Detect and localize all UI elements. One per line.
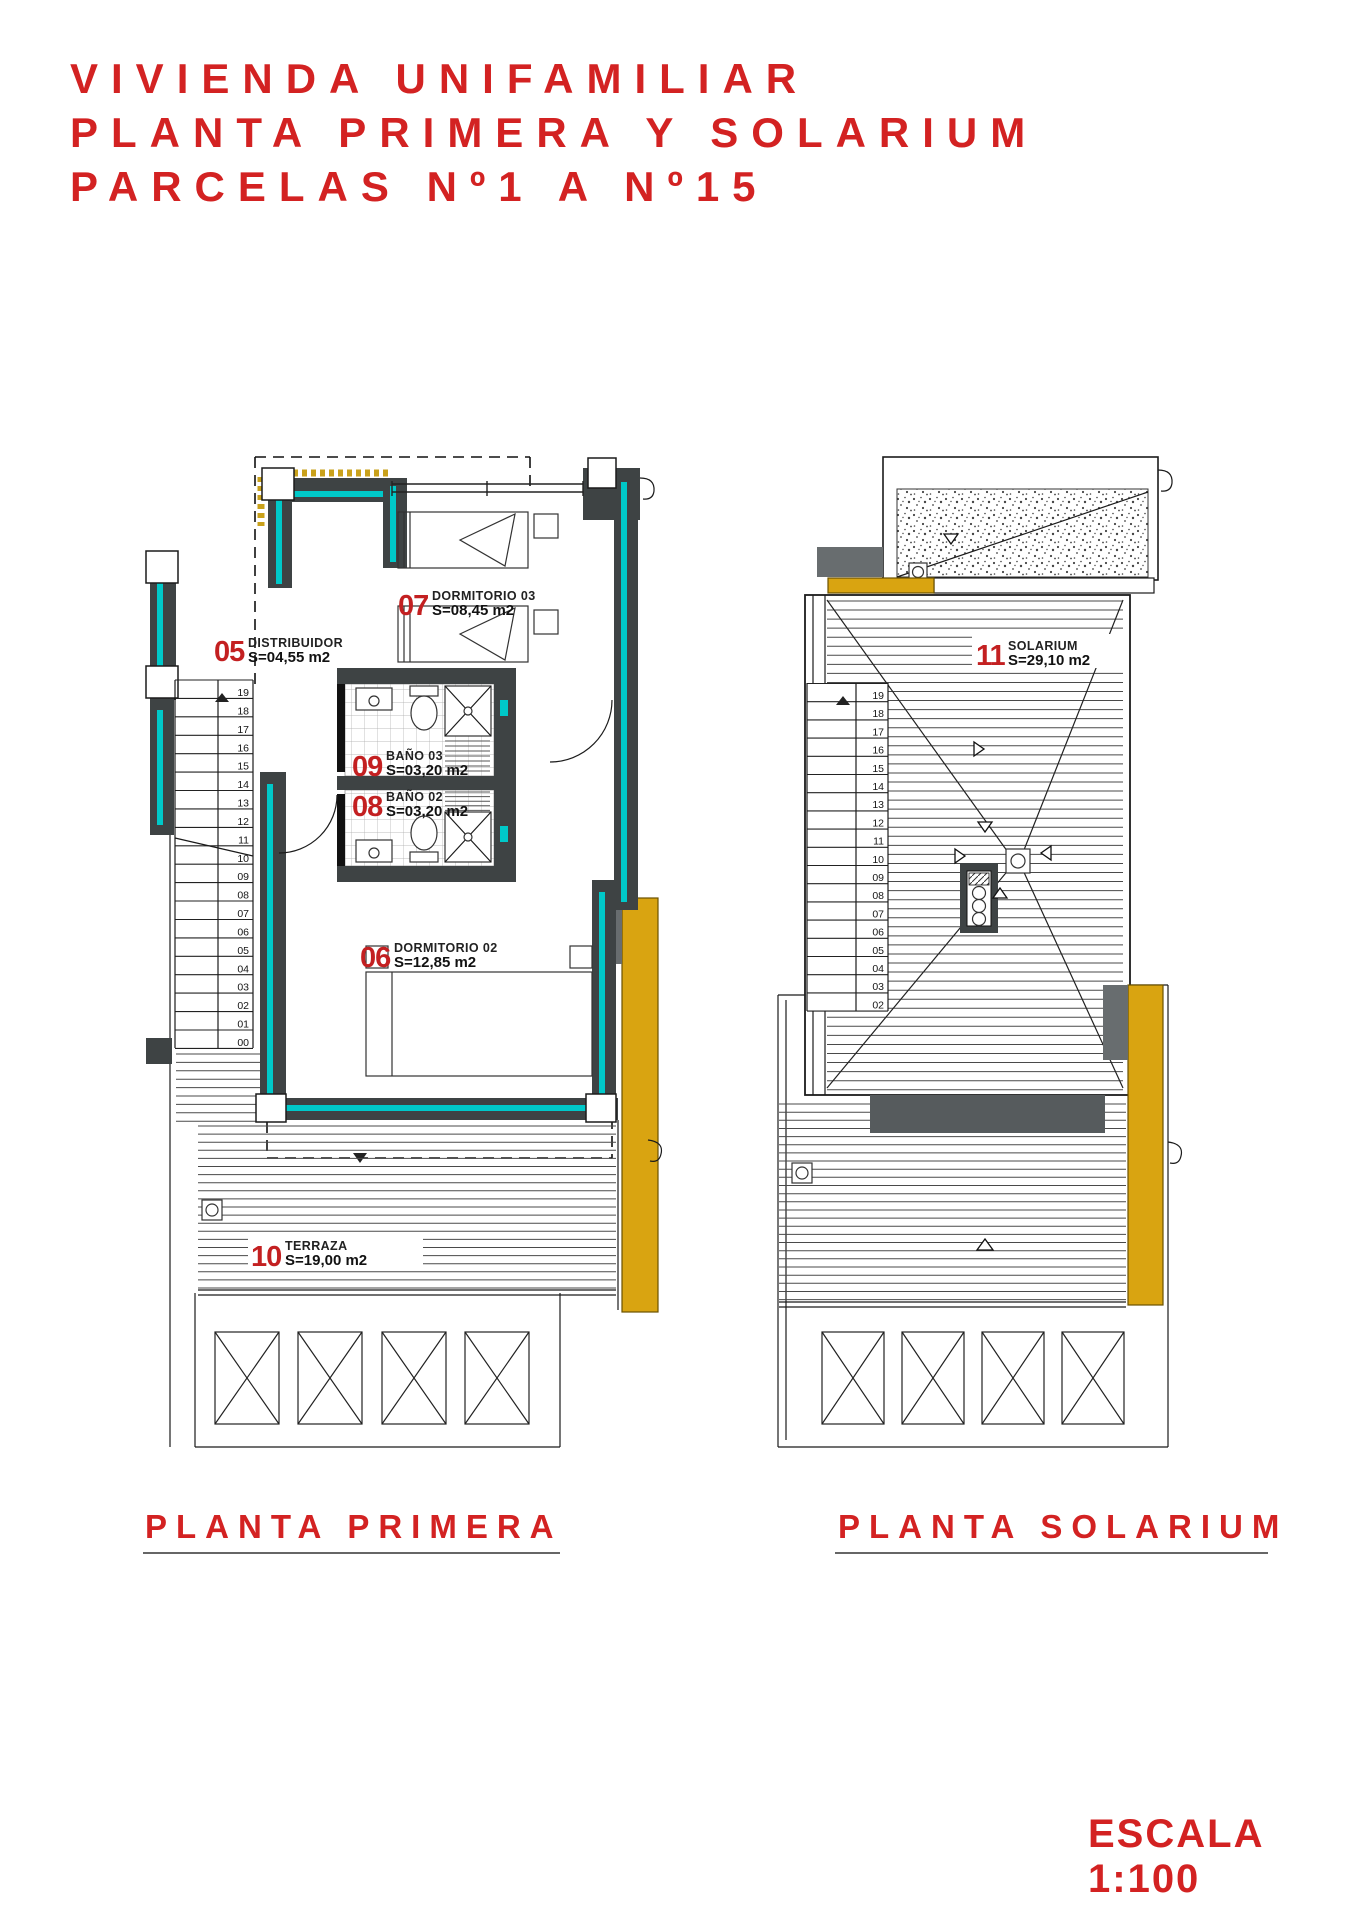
plan-primera: 1918171615141312111009080706050403020100… xyxy=(146,457,661,1447)
stair-step-number: 15 xyxy=(872,763,884,775)
shower-icon xyxy=(445,686,491,736)
stair-numbers: 1918171615141312111009080706050403020100 xyxy=(237,687,249,1049)
pergola-beam-box xyxy=(298,1332,362,1424)
room-name: DORMITORIO 02 xyxy=(394,941,498,955)
pergola-beams xyxy=(215,1332,529,1424)
stair-step-number: 12 xyxy=(237,816,249,828)
caption-planta-solarium: PLANTA SOLARIUM xyxy=(838,1508,1288,1546)
stair-step-number: 02 xyxy=(872,999,884,1011)
room-number: 08 xyxy=(352,791,383,823)
wood-deck-strip xyxy=(622,898,658,1312)
gargoyle-hook-icon xyxy=(640,478,654,499)
floor-plan-drawing: 1918171615141312111009080706050403020100… xyxy=(0,0,1356,1920)
stair-step-number: 17 xyxy=(237,724,249,736)
drawing-sheet: VIVIENDA UNIFAMILIAR PLANTA PRIMERA Y SO… xyxy=(0,0,1356,1920)
caption-planta-primera: PLANTA PRIMERA xyxy=(145,1508,563,1546)
stair-step-number: 16 xyxy=(872,745,884,757)
staircase-primera: 1918171615141312111009080706050403020100 xyxy=(175,680,253,1049)
nightstand-icon xyxy=(534,610,558,634)
pergola-beam-box xyxy=(902,1332,964,1424)
room-number: 11 xyxy=(976,640,1006,672)
window xyxy=(392,481,583,496)
solarium-body: 191817161514131211100908070605040302 xyxy=(805,595,1130,1095)
upper-roof-slab xyxy=(883,457,1158,593)
room-area: S=19,00 m2 xyxy=(285,1252,367,1269)
stair-step-number: 19 xyxy=(872,690,884,702)
stair-step-number: 05 xyxy=(872,945,884,957)
toilet-icon xyxy=(410,686,438,730)
stair-step-number: 10 xyxy=(872,854,884,866)
room-label-solarium: 11 SOLARIUM S=29,10 m2 xyxy=(972,634,1124,672)
stair-step-number: 05 xyxy=(237,945,249,957)
stair-step-number: 11 xyxy=(238,834,249,846)
hatch-block xyxy=(146,1038,172,1064)
drain-point xyxy=(792,1163,812,1183)
nightstand-icon xyxy=(570,946,592,968)
room-number: 10 xyxy=(251,1241,281,1273)
room-area: S=03,20 m2 xyxy=(386,803,468,820)
stair-step-number: 06 xyxy=(237,926,249,938)
nightstand-icon xyxy=(534,514,558,538)
stair-step-number: 18 xyxy=(237,705,249,717)
scale-label: ESCALA 1:100 xyxy=(1088,1812,1356,1902)
washbasin-icon xyxy=(356,688,392,710)
stair-step-number: 17 xyxy=(872,726,884,738)
stair-step-number: 12 xyxy=(872,817,884,829)
plan-solarium: 191817161514131211100908070605040302 xyxy=(778,457,1181,1447)
room-label-terraza: 10 TERRAZA S=19,00 m2 xyxy=(248,1232,423,1273)
concrete-block xyxy=(817,547,883,577)
pergola-beam-box xyxy=(822,1332,884,1424)
room-area: S=03,20 m2 xyxy=(386,762,468,779)
pergola-beam-box xyxy=(1062,1332,1124,1424)
concrete-block xyxy=(1103,985,1128,1060)
room-label-distribuidor: 05 DISTRIBUIDOR S=04,55 m2 xyxy=(214,636,343,668)
room-area: S=04,55 m2 xyxy=(248,649,330,666)
parapet-bar xyxy=(870,1095,1105,1133)
room-name: BAÑO 02 xyxy=(386,789,443,804)
stair-step-number: 07 xyxy=(872,908,884,920)
room-number: 06 xyxy=(360,942,391,974)
stair-step-number: 04 xyxy=(237,963,249,975)
room-name: DORMITORIO 03 xyxy=(432,589,536,603)
stair-step-number: 11 xyxy=(873,836,884,848)
roof-drain xyxy=(1006,849,1030,873)
stair-step-number: 16 xyxy=(237,742,249,754)
washbasin-icon xyxy=(356,840,392,862)
room-area: S=29,10 m2 xyxy=(1008,652,1090,669)
stair-step-number: 00 xyxy=(237,1037,249,1049)
stair-step-number: 06 xyxy=(872,927,884,939)
pergola-beam-box xyxy=(982,1332,1044,1424)
stair-step-number: 03 xyxy=(872,981,884,993)
bath-wall xyxy=(337,684,345,772)
stair-step-number: 10 xyxy=(237,853,249,865)
pergola-beams xyxy=(822,1332,1124,1424)
pergola-beam-box xyxy=(382,1332,446,1424)
stair-step-number: 03 xyxy=(237,982,249,994)
gargoyle-hook-icon xyxy=(1168,1142,1181,1163)
stair-step-number: 14 xyxy=(237,779,249,791)
pergola-beam-box xyxy=(465,1332,529,1424)
stair-step-number: 09 xyxy=(872,872,884,884)
wood-deck-strip xyxy=(1128,985,1163,1305)
room-name: BAÑO 03 xyxy=(386,748,443,763)
stair-step-number: 08 xyxy=(237,890,249,902)
stair-step-number: 15 xyxy=(237,761,249,773)
stair-step-number: 04 xyxy=(872,963,884,975)
room-number: 07 xyxy=(398,590,428,622)
stair-step-number: 01 xyxy=(237,1019,249,1031)
stair-step-number: 19 xyxy=(237,687,249,699)
lower-deck-lines xyxy=(779,1104,1126,1300)
caption-underline xyxy=(143,1552,560,1554)
room-name: SOLARIUM xyxy=(1008,639,1078,653)
stair-step-number: 09 xyxy=(237,871,249,883)
gargoyle-hook-icon xyxy=(1158,470,1172,491)
stair-step-number: 07 xyxy=(237,908,249,920)
bath-wall xyxy=(337,794,345,866)
room-name: TERRAZA xyxy=(285,1239,348,1253)
stair-up-arrow-icon xyxy=(215,693,229,702)
stair-step-number: 14 xyxy=(872,781,884,793)
slope-arrow-icon xyxy=(977,1239,993,1250)
stair-step-number: 02 xyxy=(237,1000,249,1012)
door-swing xyxy=(550,700,612,762)
drain-point xyxy=(202,1200,222,1220)
upper-walkway-strip xyxy=(934,578,1154,593)
door-swing xyxy=(279,795,337,853)
room-area: S=08,45 m2 xyxy=(432,602,514,619)
room-name: DISTRIBUIDOR xyxy=(248,636,343,650)
bed-icon xyxy=(366,972,592,1076)
lower-edge-lines xyxy=(779,1302,1126,1307)
stair-step-number: 18 xyxy=(872,708,884,720)
room-label-dormitorio2: 06 DORMITORIO 02 S=12,85 m2 xyxy=(360,941,498,974)
stair-step-number: 13 xyxy=(872,799,884,811)
room-number: 05 xyxy=(214,636,245,668)
stair-step-number: 08 xyxy=(872,890,884,902)
pergola-beam-box xyxy=(215,1332,279,1424)
toilet-icon xyxy=(410,816,438,862)
terraza-deck-lines-left xyxy=(176,1054,260,1121)
room-number: 09 xyxy=(352,751,383,783)
caption-underline xyxy=(835,1552,1268,1554)
bed-icon xyxy=(398,512,528,568)
stair-step-number: 13 xyxy=(237,798,249,810)
wood-deck-strip xyxy=(828,578,934,593)
room-area: S=12,85 m2 xyxy=(394,954,476,971)
terraza-edge-lines xyxy=(198,1290,616,1295)
